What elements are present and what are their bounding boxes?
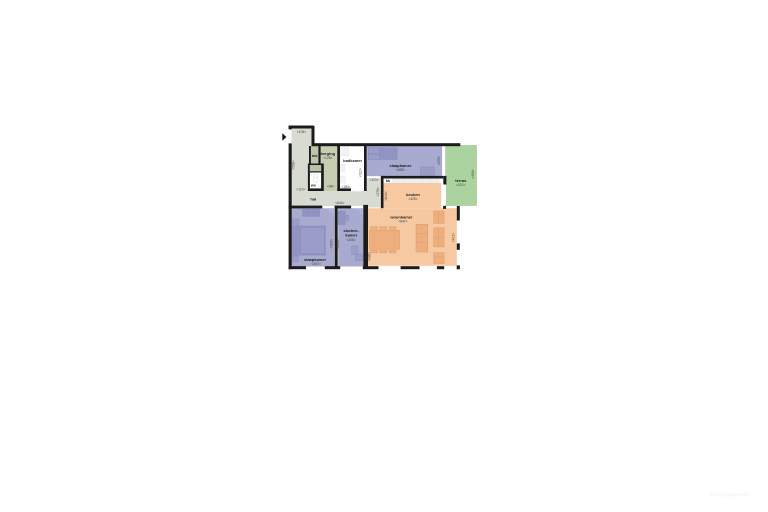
- svg-text:<558>: <558>: [292, 160, 296, 169]
- svg-text:<471>: <471>: [451, 233, 455, 242]
- svg-text:<110>: <110>: [296, 187, 305, 191]
- svg-text:<105>: <105>: [297, 130, 306, 134]
- svg-text:berging: berging: [320, 151, 335, 156]
- svg-text:floorplanner: floorplanner: [710, 492, 750, 499]
- svg-text:hal: hal: [310, 197, 316, 202]
- svg-text:<420>: <420>: [336, 239, 340, 248]
- svg-text:badkamer: badkamer: [343, 158, 362, 163]
- svg-text:<311>: <311>: [359, 168, 363, 177]
- svg-text:<420>: <420>: [330, 239, 334, 248]
- svg-text:<528>: <528>: [396, 168, 405, 172]
- svg-text:<183>: <183>: [341, 185, 350, 189]
- svg-text:<425>: <425>: [408, 197, 417, 201]
- svg-text:<125>: <125>: [323, 156, 332, 160]
- svg-text:kk: kk: [386, 178, 391, 183]
- svg-text:<221>: <221>: [456, 183, 465, 187]
- svg-text:wc: wc: [310, 182, 317, 187]
- svg-text:<270>: <270>: [437, 156, 441, 165]
- svg-text:<200>: <200>: [346, 238, 355, 242]
- svg-text:woonkamer: woonkamer: [389, 214, 413, 219]
- svg-text:<278>: <278>: [376, 187, 380, 196]
- svg-text:<110>: <110>: [369, 178, 378, 182]
- svg-text:<400>: <400>: [471, 169, 475, 178]
- svg-text:mk: mk: [312, 153, 319, 158]
- svg-text:<307>: <307>: [311, 262, 320, 266]
- svg-text:keuken: keuken: [406, 192, 420, 197]
- svg-text:<644>: <644>: [335, 201, 344, 205]
- svg-text:<98>: <98>: [327, 185, 335, 189]
- svg-text:<644>: <644>: [384, 191, 388, 200]
- svg-text:<420>: <420>: [367, 252, 371, 261]
- svg-text:<647>: <647>: [398, 220, 407, 224]
